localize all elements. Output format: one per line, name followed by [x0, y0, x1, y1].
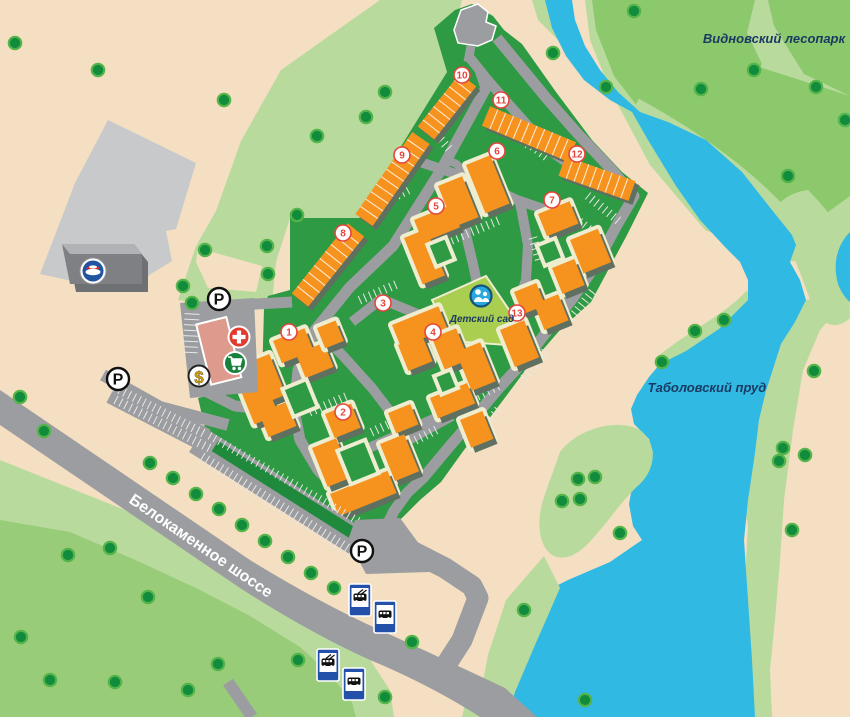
svg-text:2: 2 [340, 408, 346, 419]
svg-text:P: P [214, 292, 225, 309]
svg-text:P: P [357, 544, 368, 561]
svg-text:12: 12 [571, 150, 583, 161]
svg-text:Видновский лесопарк: Видновский лесопарк [703, 31, 847, 46]
svg-text:P: P [113, 372, 124, 389]
svg-text:4: 4 [430, 328, 436, 339]
svg-text:$: $ [194, 368, 204, 387]
svg-text:10: 10 [456, 71, 468, 82]
svg-text:6: 6 [494, 147, 500, 158]
svg-text:5: 5 [433, 202, 439, 213]
svg-text:11: 11 [496, 96, 507, 107]
svg-text:7: 7 [549, 196, 555, 207]
svg-text:9: 9 [399, 151, 405, 162]
svg-text:Детский сад: Детский сад [449, 314, 514, 325]
svg-text:Таболовский пруд: Таболовский пруд [648, 380, 767, 395]
svg-text:1: 1 [286, 328, 292, 339]
svg-text:3: 3 [380, 299, 386, 310]
svg-text:8: 8 [340, 229, 346, 240]
